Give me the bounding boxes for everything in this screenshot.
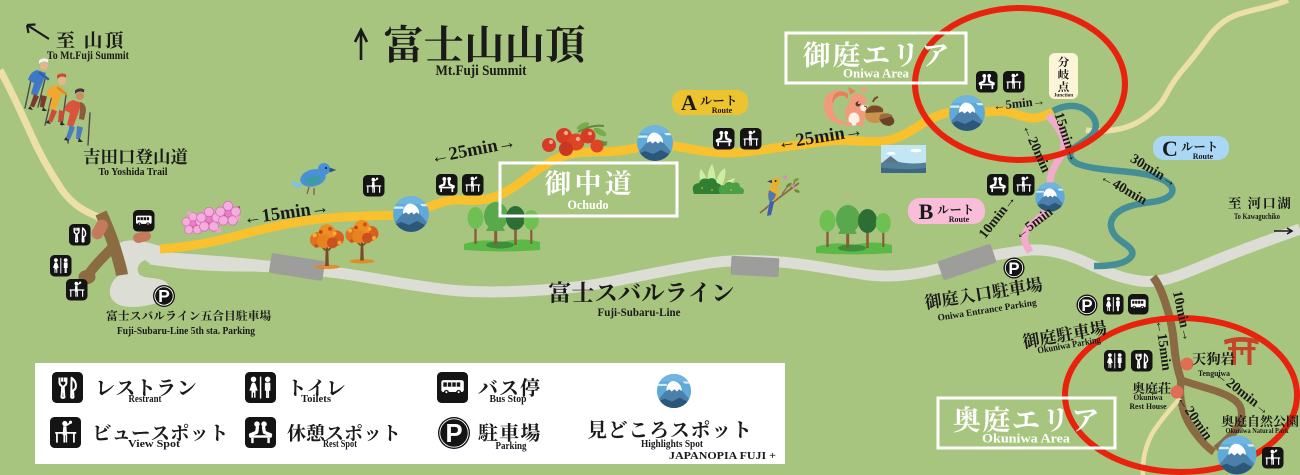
svg-text:Rest House: Rest House [1130, 401, 1167, 411]
svg-text:Rest Spot: Rest Spot [323, 439, 358, 450]
svg-text:To Mt.Fuji Summit: To Mt.Fuji Summit [47, 50, 129, 62]
svg-text:To Kawaguchiko: To Kawaguchiko [1234, 211, 1280, 221]
svg-text:Junction: Junction [1054, 93, 1073, 99]
svg-text:P: P [1081, 296, 1092, 315]
svg-text:Okuniwa Area: Okuniwa Area [982, 432, 1071, 446]
svg-text:C: C [1162, 136, 1178, 161]
svg-text:B: B [919, 199, 934, 224]
svg-text:Bus Stop: Bus Stop [490, 394, 527, 405]
svg-text:Fuji-Subaru-Line 5th sta. Park: Fuji-Subaru-Line 5th sta. Parking [117, 326, 255, 337]
svg-text:Parking: Parking [496, 441, 527, 452]
svg-text:A: A [681, 90, 697, 115]
svg-text:To Yoshida Trail: To Yoshida Trail [99, 166, 168, 178]
svg-text:Route: Route [712, 106, 733, 115]
svg-text:Fuji-Subaru-Line: Fuji-Subaru-Line [598, 307, 681, 319]
svg-text:P: P [158, 286, 170, 306]
svg-text:Toilets: Toilets [301, 394, 331, 405]
svg-text:Highlights Spot: Highlights Spot [641, 439, 704, 450]
svg-text:Okuniwa Natural Park: Okuniwa Natural Park [1226, 427, 1289, 435]
svg-text:Route: Route [1193, 152, 1214, 161]
svg-text:Restrant: Restrant [129, 394, 163, 405]
svg-text:Mt.Fuji Summit: Mt.Fuji Summit [436, 63, 527, 79]
svg-text:JAPANOPIA FUJI +: JAPANOPIA FUJI + [669, 450, 776, 462]
svg-text:Ochudo: Ochudo [568, 198, 609, 212]
svg-text:View Spot: View Spot [128, 439, 181, 450]
svg-text:P: P [445, 420, 462, 448]
svg-text:P: P [1008, 259, 1019, 278]
svg-text:Route: Route [949, 215, 970, 224]
svg-text:Oniwa Area: Oniwa Area [843, 67, 910, 81]
